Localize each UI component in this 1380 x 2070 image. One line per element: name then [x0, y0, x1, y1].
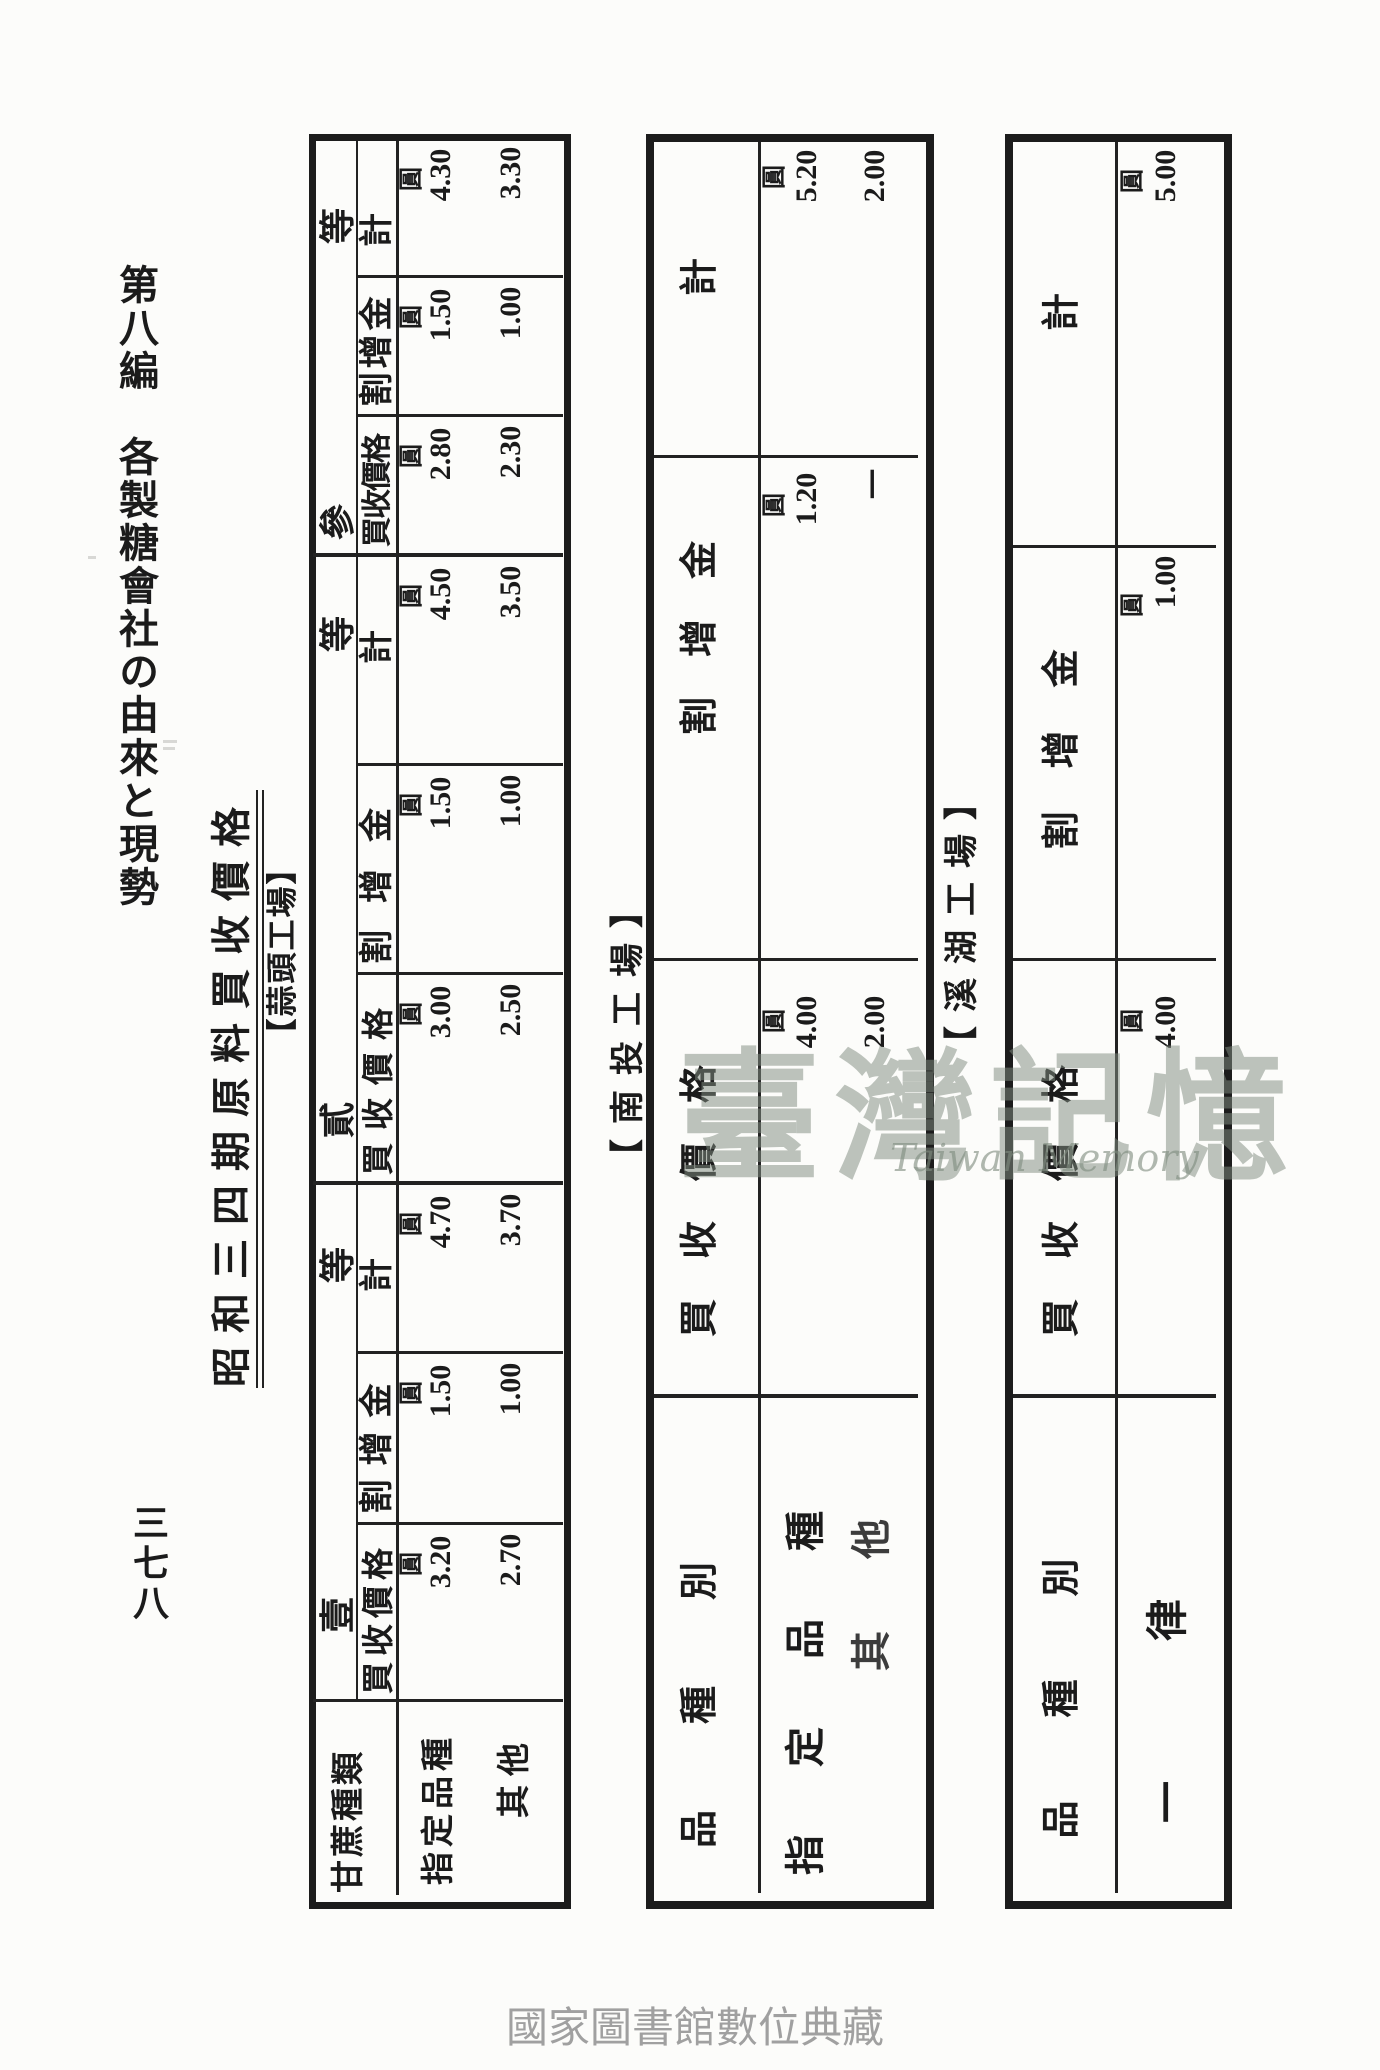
t1-v1-0-text: 4.30	[421, 139, 461, 211]
t3-v1-0-text: 5.00	[1146, 140, 1186, 212]
t1-v2-1-text: 1.00	[491, 277, 531, 349]
table1-header-line	[313, 1699, 563, 1702]
t1-v1-7-text: 1.50	[421, 1355, 461, 1427]
t1-v2-6-text: 3.70	[491, 1184, 531, 1256]
t1-v2-5-text: 2.50	[491, 974, 531, 1046]
t2-label-1-text: 割增金	[678, 492, 722, 744]
scan-speckle	[88, 556, 96, 559]
t1-label-3-text: 計	[358, 625, 398, 669]
t2-row2-header-text: 其他	[850, 1443, 894, 1675]
scanned-document-page: 第八編 各製糖會社の由來と現勢 三七八 昭和三四期原料買收價格 【蒜頭工場】 【…	[0, 0, 1380, 2070]
t1-group-3-text: 等	[318, 612, 358, 656]
table1-row-line	[357, 1522, 563, 1525]
main-title-text: 昭和三四期原料買收價格	[210, 786, 254, 1394]
scan-speckle	[163, 740, 177, 743]
t1-v2-7-text: 1.00	[491, 1353, 531, 1425]
t3-typecol-header-text: 品種別	[1040, 1466, 1084, 1848]
t1-v2-2-text: 2.30	[491, 416, 531, 488]
t1-label-4-text: 割增金	[358, 779, 398, 966]
factory-label-nanto-text: 【南投工場】	[610, 866, 648, 1186]
t1-v2-4-text: 1.00	[491, 765, 531, 837]
t2-v1-1-text: 1.20	[787, 463, 827, 535]
t1-label-2-text: 買收價格	[358, 433, 398, 549]
t2-v2-0-text: 2.00	[855, 140, 895, 212]
t1-label-1-text: 割增金	[358, 291, 398, 408]
t3-yen-1-text: 圓	[1120, 590, 1147, 620]
t2-v1-0-text: 5.20	[787, 140, 827, 212]
t1-v1-4-text: 1.50	[421, 767, 461, 839]
t1-v1-2-text: 2.80	[421, 418, 461, 490]
t3-yen-0-text: 圓	[1120, 166, 1147, 196]
t1-group-0-text: 等	[318, 204, 358, 248]
t1-label-7-text: 割增金	[358, 1367, 398, 1516]
title-underline-2	[262, 790, 264, 1388]
t1-label-0-text: 計	[358, 208, 398, 252]
factory-label-soto-text: 【蒜頭工場】	[266, 848, 300, 1053]
t1-v1-5-text: 3.00	[421, 976, 461, 1048]
t1-v1-1-text: 1.50	[421, 279, 461, 351]
t1-v2-0-text: 3.30	[491, 137, 531, 209]
t2-yen-0-text: 圓	[762, 162, 789, 192]
table1-row-line	[357, 1351, 563, 1354]
t2-v2-1-dash-text: 一	[856, 466, 894, 502]
t2-row1-header-text: 指定品種	[784, 1443, 828, 1875]
t1-group-6-text: 等	[318, 1243, 358, 1287]
edition-header: 第八編 各製糖會社の由來と現勢	[106, 264, 164, 914]
table1-row-line	[357, 763, 563, 766]
t1-v1-3-text: 4.50	[421, 558, 461, 630]
t1-group-2-text: 參	[318, 500, 358, 544]
table2-row-line	[654, 1394, 918, 1398]
scan-speckle	[163, 747, 175, 750]
t1-v2-8-text: 2.70	[491, 1524, 531, 1596]
t1-label-8-text: 買收價格	[358, 1543, 398, 1694]
table3-row-line	[1013, 958, 1216, 961]
t1-v2-3-text: 3.50	[491, 556, 531, 628]
table1-row-line	[357, 275, 563, 278]
t1-group-8-text: 壹	[318, 1593, 358, 1637]
t1-typecol-header-text: 甘蔗種類	[328, 1747, 370, 1895]
t3-label-0-text: 計	[1040, 288, 1084, 336]
t2-yen-1-text: 圓	[762, 490, 789, 520]
t2-label-0-text: 計	[678, 253, 722, 301]
table1-row-line	[357, 972, 563, 975]
t2-typecol-header-text: 品種別	[678, 1466, 722, 1858]
t1-group-5-text: 貳	[318, 1098, 358, 1142]
t1-row1-header-text: 指定品種	[419, 1730, 459, 1888]
title-underline-1	[256, 790, 258, 1388]
table3-row-line	[1013, 1394, 1216, 1398]
t1-label-5-text: 買收價格	[358, 993, 398, 1177]
table2-row-line	[654, 455, 918, 458]
page-number: 三七八	[122, 1504, 174, 1634]
t3-row1-header-text: 一律	[1146, 1455, 1192, 1827]
watermark-latin: Taiwan Memory	[890, 1136, 1199, 1180]
t1-row2-header-text: 其他	[495, 1733, 535, 1819]
table1-row-line	[357, 414, 563, 417]
t3-v1-1-text: 1.00	[1146, 546, 1186, 618]
table2-row-line	[654, 958, 918, 961]
t3-label-1-text: 割增金	[1040, 597, 1084, 859]
t1-label-6-text: 計	[358, 1253, 398, 1297]
t1-v1-6-text: 4.70	[421, 1186, 461, 1258]
archive-caption: 國家圖書館數位典藏	[506, 1994, 884, 2055]
t1-v1-8-text: 3.20	[421, 1526, 461, 1598]
